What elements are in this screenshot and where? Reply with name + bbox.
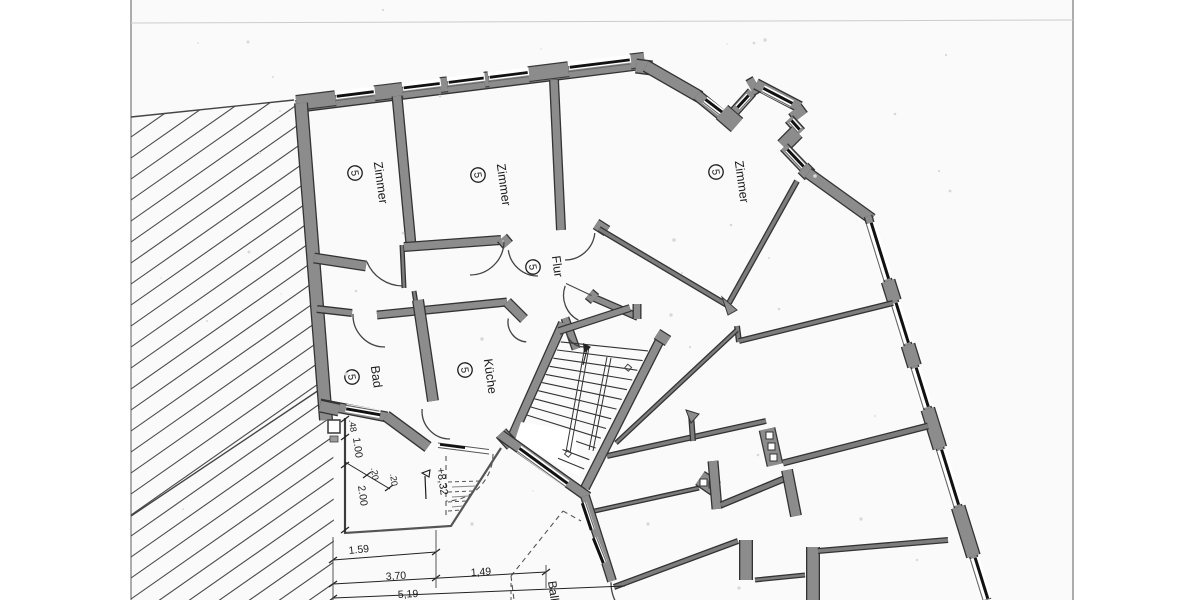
svg-text:5,19: 5,19 [398, 588, 419, 600]
svg-text:1.59: 1.59 [348, 543, 370, 557]
svg-text:.48: .48 [347, 419, 359, 433]
svg-text:3,70: 3,70 [385, 570, 406, 583]
svg-text:1,49: 1,49 [470, 566, 491, 579]
svg-text:.20: .20 [369, 467, 381, 481]
svg-text:Flur: Flur [549, 255, 566, 278]
svg-text:.20: .20 [388, 473, 400, 487]
